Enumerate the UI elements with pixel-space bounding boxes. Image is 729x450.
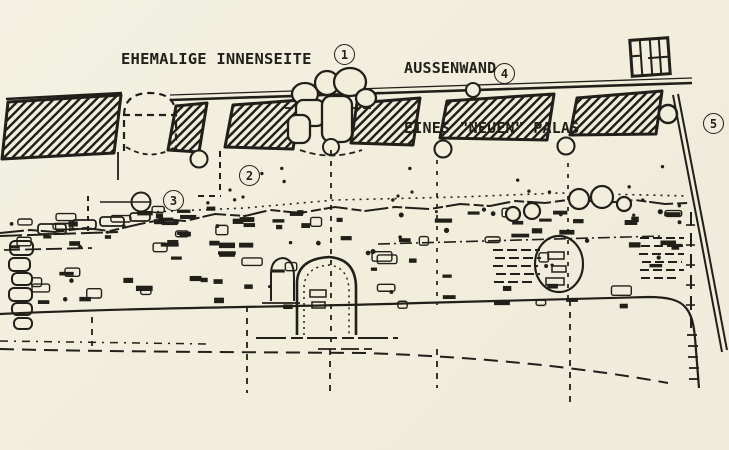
left-stone-column <box>9 241 33 329</box>
label-outer-wall-line2: EINES "NEUEN" PALAS <box>404 118 579 138</box>
label-outer-wall: AUSSENWAND EINES "NEUEN" PALAS <box>404 18 579 158</box>
ruins-band <box>0 165 695 349</box>
rubble-scatter <box>10 165 682 308</box>
post-circle <box>191 151 208 168</box>
stone-row-left <box>38 213 150 234</box>
terrain-dashed <box>0 349 668 383</box>
plan-drawing <box>0 0 729 450</box>
hatched-pier <box>570 91 662 135</box>
right-boulders <box>506 186 631 221</box>
callout-marker-3: 3 <box>163 190 184 211</box>
scanned-plan-page: EHEMALIGE INNENSEITE AUSSENWAND EINES "N… <box>0 0 729 450</box>
oval-feature <box>535 236 583 292</box>
label-outer-wall-line1: AUSSENWAND <box>404 58 579 78</box>
masonry-stack <box>493 250 541 282</box>
callout-marker-1: 1 <box>334 44 355 65</box>
callout-marker-5: 5 <box>703 113 724 134</box>
terrain-edge <box>0 297 699 388</box>
wall-end-bump <box>659 105 677 123</box>
callout-marker-4: 4 <box>494 63 515 84</box>
grid-box-icon <box>630 38 670 77</box>
small-arch <box>271 258 294 301</box>
label-former-inner-side: EHEMALIGE INNENSEITE <box>121 50 312 68</box>
hatched-pier <box>168 103 207 152</box>
hatched-pier <box>2 95 121 159</box>
survey-lines-mid <box>88 150 568 345</box>
callout-marker-2: 2 <box>239 165 260 186</box>
